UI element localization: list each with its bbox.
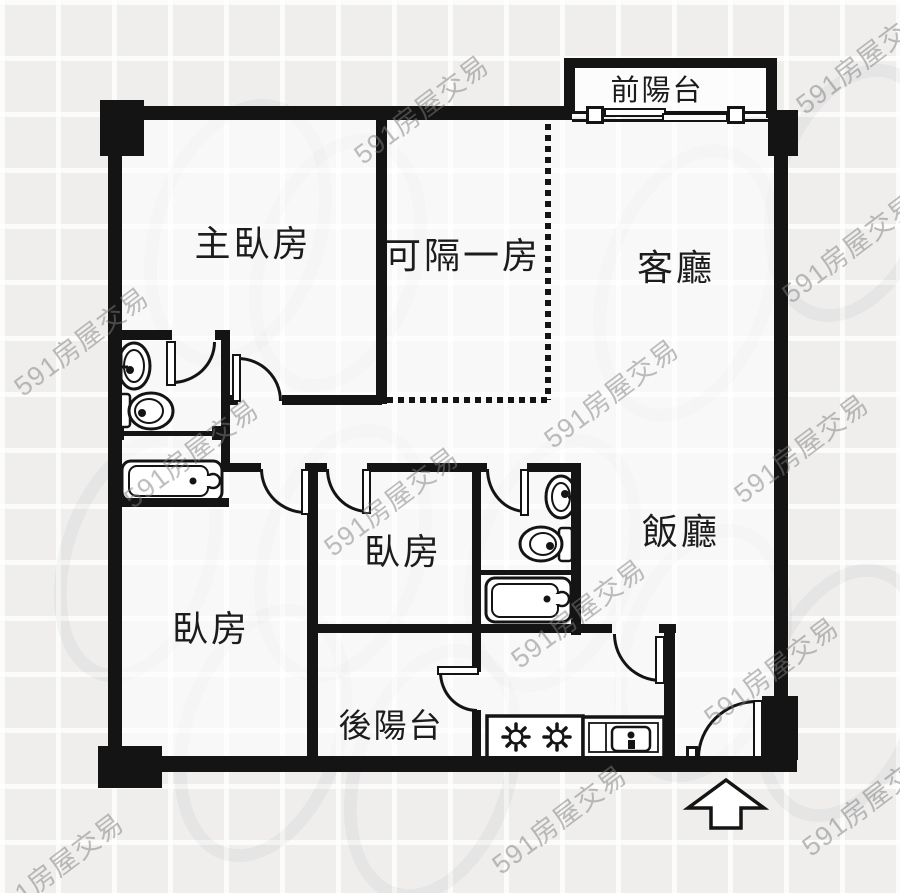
sliding-door-icon	[727, 106, 745, 124]
room-label-master-bedroom: 主臥房	[194, 215, 311, 267]
column	[100, 100, 144, 156]
room-label-partitionable-room: 可隔一房	[385, 227, 541, 279]
toilet-icon	[520, 527, 572, 561]
bathtub-icon	[122, 461, 222, 501]
column	[762, 696, 798, 760]
room-label-rear-balcony: 後陽台	[339, 699, 444, 747]
gas-stove-icon	[487, 716, 583, 758]
sliding-door-icon	[662, 113, 728, 122]
door-leaf	[362, 469, 371, 514]
wall	[472, 710, 481, 763]
door-jamb	[686, 746, 698, 759]
wall	[116, 498, 229, 507]
shower-rod-icon	[114, 426, 124, 440]
toilet-icon	[117, 393, 173, 429]
wall	[472, 463, 481, 635]
entrance-arrow-icon	[688, 780, 764, 828]
door-leaf	[166, 341, 176, 386]
door-leaf	[753, 700, 763, 758]
wall	[766, 58, 777, 118]
kitchen-sink-counter-icon	[583, 717, 664, 758]
column	[98, 746, 162, 788]
wall	[116, 330, 172, 340]
room-label-front-balcony: 前陽台	[610, 67, 703, 109]
door-leaf	[437, 666, 479, 675]
room-label-dining-room: 飯廳	[642, 503, 720, 555]
door-leaf	[232, 354, 241, 402]
wall	[774, 114, 788, 768]
wall	[481, 570, 571, 575]
floor-plan-canvas: 前陽台 主臥房 可隔一房 客廳 臥房 飯廳 臥房 後陽台 591房屋交易 591…	[0, 0, 900, 893]
sliding-door-icon	[604, 108, 666, 117]
partition-dotted-line	[387, 397, 549, 403]
shower-rod-icon	[212, 426, 222, 440]
door-leaf	[520, 469, 529, 516]
door-leaf	[655, 636, 665, 684]
wall	[282, 395, 382, 405]
partition-dotted-line	[545, 124, 551, 400]
sliding-door-icon	[586, 106, 604, 124]
room-label-living-room: 客廳	[637, 239, 715, 291]
wall	[221, 330, 230, 472]
bathtub-icon	[486, 578, 571, 622]
shower-rod-icon	[120, 431, 218, 436]
wall	[108, 106, 572, 120]
door-leaf	[301, 469, 310, 515]
room-label-bedroom-middle: 臥房	[364, 523, 442, 575]
wall	[571, 463, 581, 635]
wall	[664, 630, 675, 763]
wall	[221, 463, 261, 472]
column	[768, 110, 798, 156]
wall	[367, 463, 487, 472]
room-label-bedroom-left: 臥房	[172, 600, 250, 652]
wall	[307, 624, 612, 633]
